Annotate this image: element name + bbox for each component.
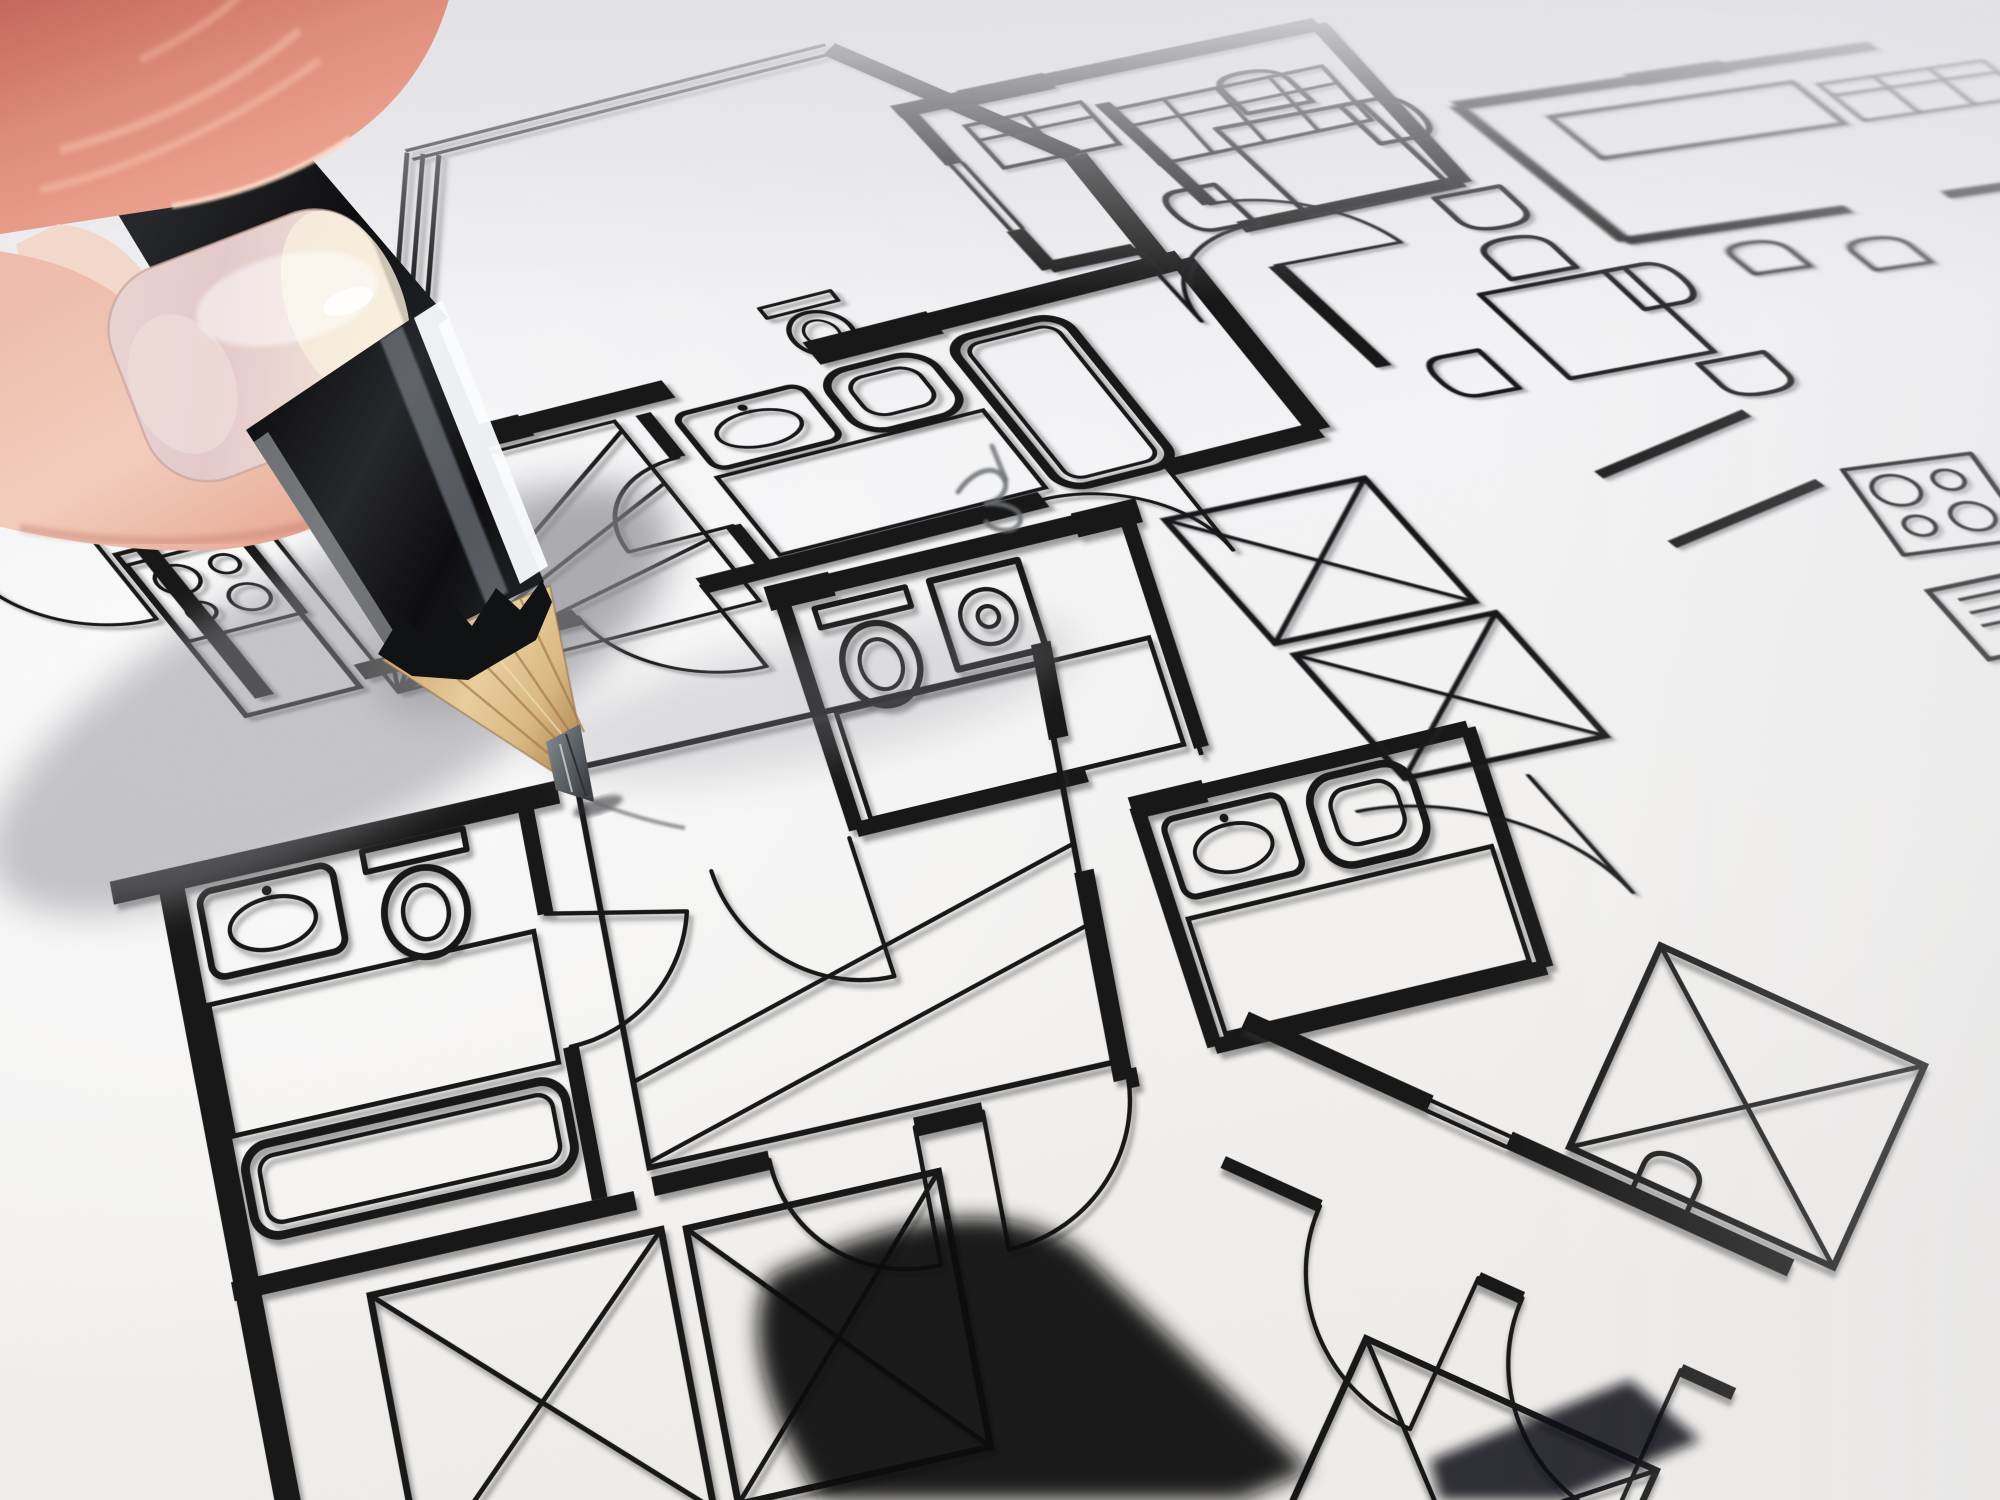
dof-haze-right (1500, 0, 2000, 1500)
photo-canvas (0, 0, 2000, 1500)
photo (0, 0, 2000, 1500)
